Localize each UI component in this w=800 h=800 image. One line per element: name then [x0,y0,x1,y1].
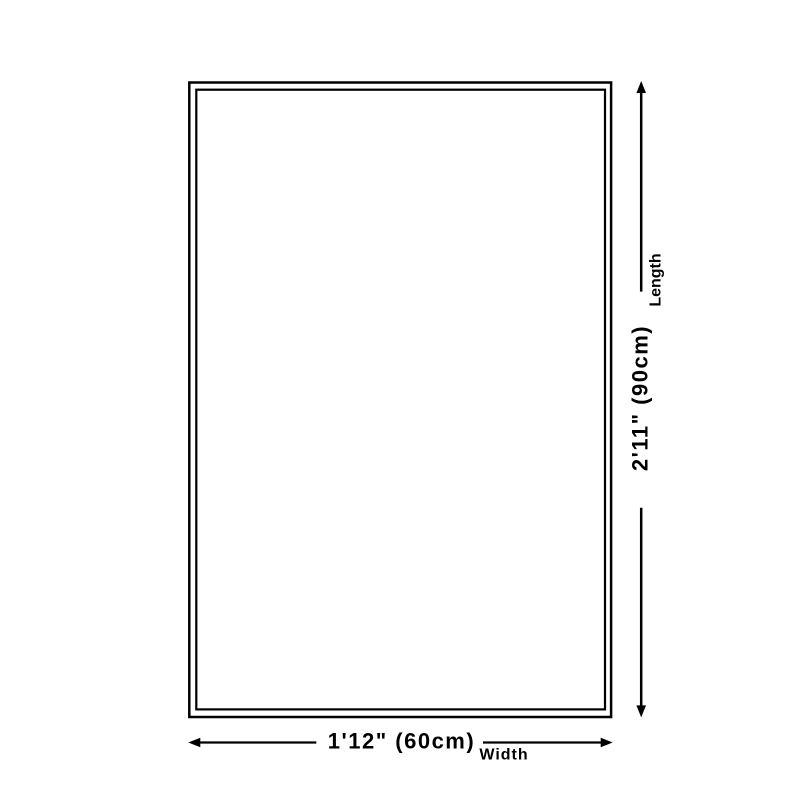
svg-text:Length: Length [648,253,665,306]
svg-text:2'11" (90cm): 2'11" (90cm) [627,325,652,471]
svg-text:1'12" (60cm): 1'12" (60cm) [328,729,475,754]
svg-text:Width: Width [479,747,528,764]
